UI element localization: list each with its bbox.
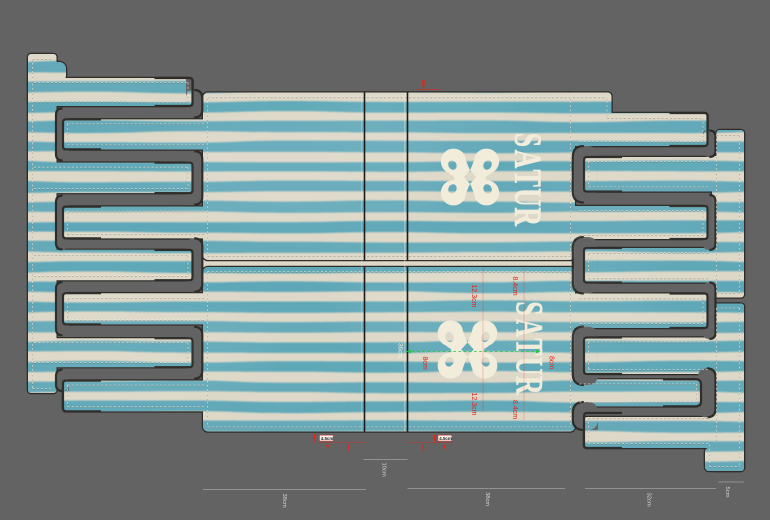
svg-text:12.3cm: 12.3cm xyxy=(470,393,477,416)
svg-text:32cm: 32cm xyxy=(646,493,652,507)
svg-text:8.4cm: 8.4cm xyxy=(511,277,518,296)
svg-text:T: T xyxy=(506,170,550,187)
svg-text:T: T xyxy=(507,338,551,355)
svg-text:36cm: 36cm xyxy=(397,343,404,359)
svg-text:4.5cm: 4.5cm xyxy=(321,436,334,441)
svg-text:8cm: 8cm xyxy=(421,357,428,370)
svg-text:U: U xyxy=(507,357,551,376)
svg-text:5cm: 5cm xyxy=(724,487,730,498)
svg-text:U: U xyxy=(506,188,550,207)
svg-text:8.4cm: 8.4cm xyxy=(511,400,518,419)
svg-text:12.3cm: 12.3cm xyxy=(470,285,477,308)
svg-text:A: A xyxy=(507,318,551,337)
svg-text:R: R xyxy=(507,376,551,396)
svg-text:38cm: 38cm xyxy=(281,494,287,508)
svg-text:8cm: 8cm xyxy=(548,356,555,369)
svg-text:R: R xyxy=(506,207,550,227)
svg-text:38cm: 38cm xyxy=(484,492,490,506)
svg-text:4.5cm: 4.5cm xyxy=(439,436,452,441)
svg-text:A: A xyxy=(506,150,550,169)
svg-text:10cm: 10cm xyxy=(381,463,387,477)
svg-text:S: S xyxy=(506,133,550,147)
svg-text:S: S xyxy=(507,301,551,315)
